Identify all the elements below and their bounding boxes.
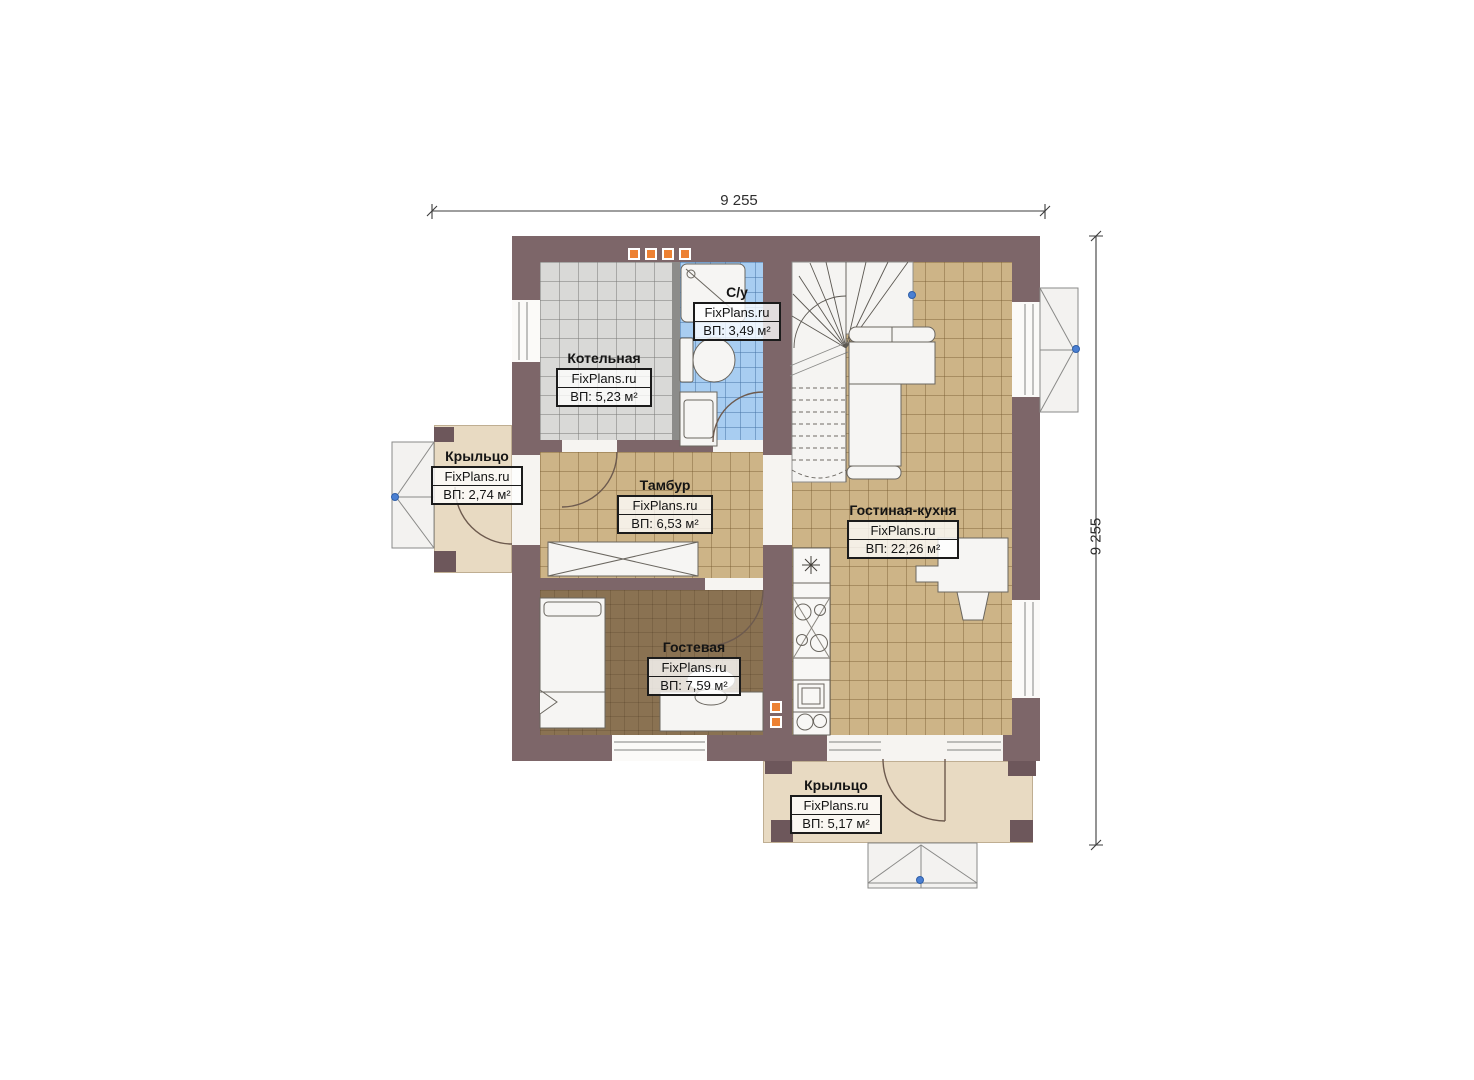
dimension-height-label: 9 255 <box>1088 497 1105 577</box>
marker-dot-icon <box>908 291 916 299</box>
room-label-kryltso-bottom: Крыльцо FixPlans.ru ВП: 5,17 м² <box>788 777 884 834</box>
room-area: ВП: 7,59 м² <box>649 676 739 694</box>
room-label-su: С/у FixPlans.ru ВП: 3,49 м² <box>690 284 784 341</box>
watermark-fixplans: FixPlans.ru <box>558 370 650 387</box>
wall-left-1 <box>512 236 540 300</box>
watermark-fixplans: FixPlans.ru <box>792 797 880 814</box>
wall-bottom-2 <box>707 735 827 761</box>
room-area: ВП: 5,17 м² <box>792 814 880 832</box>
door-threshold-kotelnaya <box>562 440 617 452</box>
door-threshold-gostevaya <box>705 578 763 590</box>
window-bay-right <box>1012 302 1040 397</box>
opening-bottom-terrace <box>827 735 1003 761</box>
wall-right-1 <box>1012 236 1040 302</box>
vent-icon <box>679 248 691 260</box>
room-label-box: FixPlans.ru ВП: 3,49 м² <box>693 302 781 341</box>
opening-tambur-gostinaya <box>763 455 792 545</box>
watermark-fixplans: FixPlans.ru <box>849 522 957 539</box>
wall-right-2 <box>1012 397 1040 600</box>
room-label-box: FixPlans.ru ВП: 7,59 м² <box>647 657 741 696</box>
window-gostevaya-bottom <box>612 735 707 761</box>
room-label-tambur: Тамбур FixPlans.ru ВП: 6,53 м² <box>612 477 718 534</box>
wall-h2 <box>540 578 705 590</box>
room-title: Гостиная-кухня <box>842 502 964 518</box>
wall-kotelnaya-su-partition <box>672 262 680 440</box>
room-label-box: FixPlans.ru ВП: 5,17 м² <box>790 795 882 834</box>
room-label-box: FixPlans.ru ВП: 2,74 м² <box>431 466 523 505</box>
marker-dot-icon <box>391 493 399 501</box>
watermark-fixplans: FixPlans.ru <box>649 659 739 676</box>
wall-h1-b <box>617 440 713 452</box>
room-title: Крыльцо <box>788 777 884 793</box>
wall-left-2 <box>512 362 540 455</box>
room-title: С/у <box>690 284 784 300</box>
room-label-box: FixPlans.ru ВП: 6,53 м² <box>617 495 713 534</box>
wall-h1-a <box>540 440 562 452</box>
wall-top <box>512 236 1040 262</box>
wall-left-3 <box>512 545 540 761</box>
watermark-fixplans: FixPlans.ru <box>433 468 521 485</box>
room-area: ВП: 5,23 м² <box>558 387 650 405</box>
room-area: ВП: 22,26 м² <box>849 539 957 557</box>
room-title: Гостевая <box>644 639 744 655</box>
room-label-kotelnaya: Котельная FixPlans.ru ВП: 5,23 м² <box>552 350 656 407</box>
marker-dot-icon <box>1072 345 1080 353</box>
room-title: Крыльцо <box>430 448 524 464</box>
vent-icon <box>628 248 640 260</box>
vent-icon <box>770 716 782 728</box>
room-title: Тамбур <box>612 477 718 493</box>
wall-bottom-3 <box>1003 735 1040 761</box>
vent-icon <box>770 701 782 713</box>
vent-icon <box>645 248 657 260</box>
marker-dot-icon <box>916 876 924 884</box>
door-threshold-su <box>713 440 763 452</box>
room-label-gostevaya: Гостевая FixPlans.ru ВП: 7,59 м² <box>644 639 744 696</box>
room-label-box: FixPlans.ru ВП: 22,26 м² <box>847 520 959 559</box>
room-area: ВП: 2,74 м² <box>433 485 521 503</box>
porch-left-pillar-top <box>434 427 454 442</box>
floor-plan-canvas: Котельная FixPlans.ru ВП: 5,23 м² С/у Fi… <box>0 0 1474 1080</box>
vent-icon <box>662 248 674 260</box>
watermark-fixplans: FixPlans.ru <box>695 304 779 321</box>
room-area: ВП: 6,53 м² <box>619 514 711 532</box>
wall-bottom-1 <box>512 735 612 761</box>
room-label-box: FixPlans.ru ВП: 5,23 м² <box>556 368 652 407</box>
window-gostinaya-right <box>1012 600 1040 698</box>
room-gostinaya-floor <box>792 262 1012 735</box>
porch-bottom-pillar-tr <box>1008 761 1036 776</box>
porch-bottom-pillar-tl <box>765 761 792 774</box>
room-label-kryltso-left: Крыльцо FixPlans.ru ВП: 2,74 м² <box>430 448 524 505</box>
porch-left-pillar-bottom <box>434 551 456 572</box>
window-kotelnaya-left <box>512 300 540 362</box>
watermark-fixplans: FixPlans.ru <box>619 497 711 514</box>
dimension-width-label: 9 255 <box>699 192 779 209</box>
room-label-gostinaya: Гостиная-кухня FixPlans.ru ВП: 22,26 м² <box>842 502 964 559</box>
room-area: ВП: 3,49 м² <box>695 321 779 339</box>
room-title: Котельная <box>552 350 656 366</box>
porch-bottom-pillar-br <box>1010 820 1033 842</box>
